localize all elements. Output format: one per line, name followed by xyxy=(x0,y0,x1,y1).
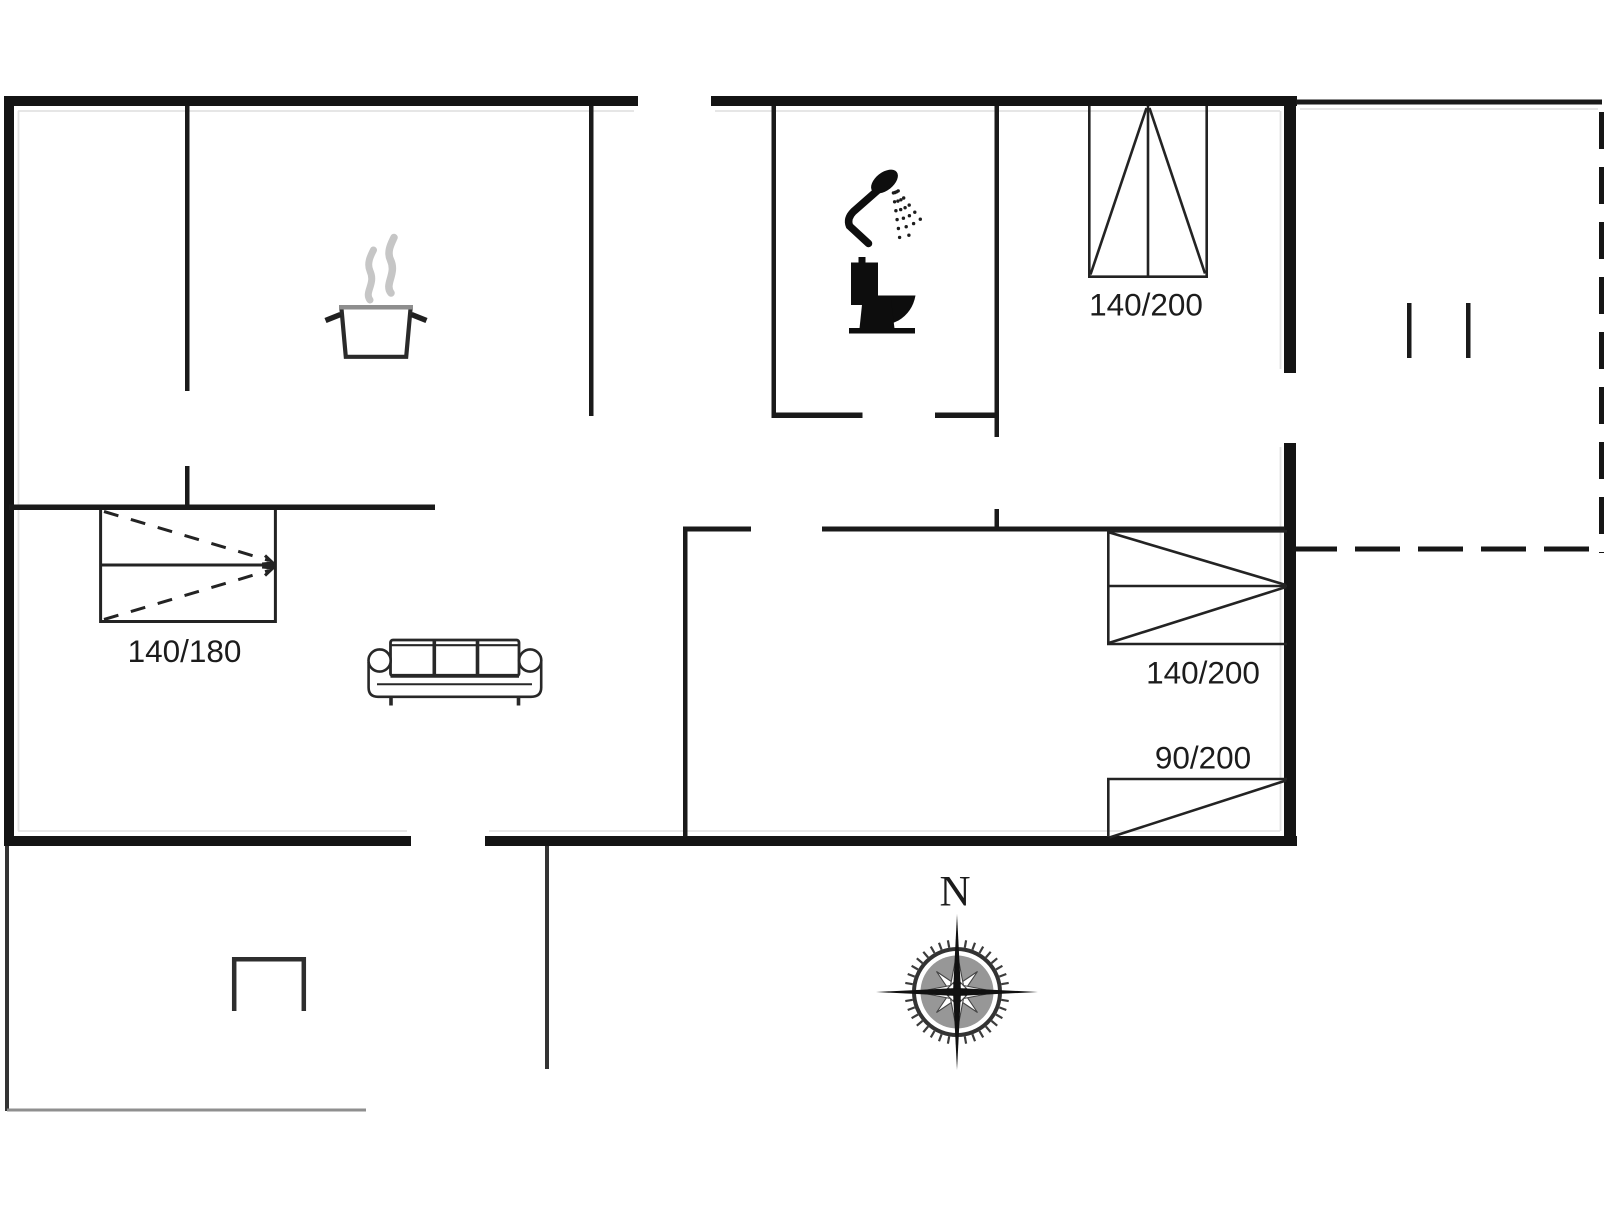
svg-text:140/200: 140/200 xyxy=(1146,655,1260,691)
svg-text:90/200: 90/200 xyxy=(1155,740,1251,776)
svg-text:140/180: 140/180 xyxy=(128,633,242,669)
svg-text:140/200: 140/200 xyxy=(1089,287,1203,323)
svg-text:N: N xyxy=(939,869,970,916)
